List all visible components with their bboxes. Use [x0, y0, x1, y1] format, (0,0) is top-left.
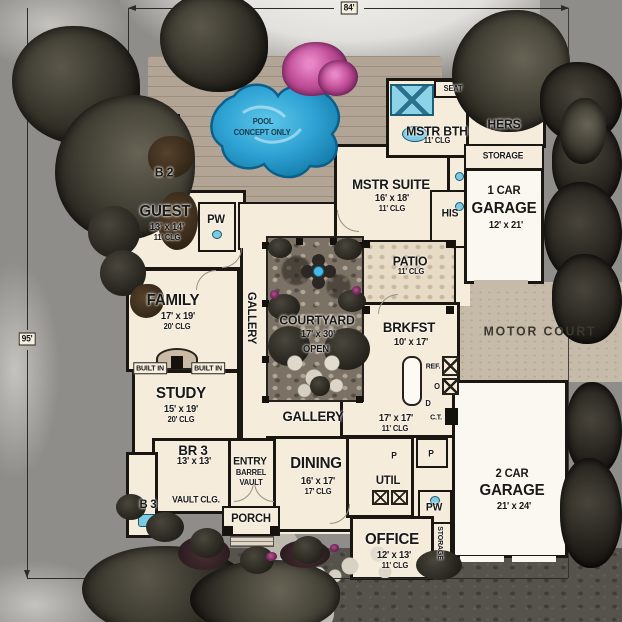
br3-clg: VAULT CLG. [172, 496, 220, 505]
courtyard-planter [334, 238, 362, 260]
kitchen-island [402, 356, 422, 406]
courtyard-open: OPEN [303, 345, 329, 355]
dim-line-top [364, 8, 568, 9]
mstr-shower [390, 84, 434, 116]
ct-label: C.T. [430, 413, 442, 421]
bath3-label: B 3 [140, 498, 157, 510]
patio-clg: 11' CLG [398, 268, 424, 276]
mstr-suite-label: MSTR SUITE [352, 177, 430, 191]
dining-size: 16' x 17' [301, 477, 335, 487]
seat-label: SEAT [444, 85, 463, 93]
study-clg: 20' CLG [168, 416, 195, 424]
gallery-left-label: GALLERY [246, 292, 258, 344]
study-size: 15' x 19' [164, 405, 198, 415]
courtyard-planter [268, 238, 292, 258]
porch-label: PORCH [231, 512, 271, 524]
dim-height-label: 95' [19, 333, 36, 346]
garage2-size: 21' x 24' [497, 502, 531, 512]
garage1-door [474, 280, 528, 286]
dryer [391, 490, 408, 505]
dining-clg: 17' CLG [305, 488, 332, 496]
powder1-label: PW [207, 213, 225, 225]
porch-column [224, 526, 233, 535]
dining-label: DINING [290, 456, 342, 472]
hers-label: HERS [487, 118, 520, 131]
dim-arrow [128, 5, 136, 11]
mstr-bath-clg: 11' CLG [424, 137, 450, 145]
courtyard-size: 17' x 30' [301, 330, 335, 340]
office-size: 12' x 13' [377, 551, 411, 561]
study-label: STUDY [156, 386, 206, 402]
bush [190, 528, 224, 558]
brkfst-label: BRKFST [383, 320, 435, 334]
guest-label: GUEST [140, 204, 191, 220]
gallery-column [296, 238, 303, 245]
office-label: OFFICE [365, 532, 419, 548]
pool-label: POOL [253, 118, 274, 126]
ref-label: REF. [426, 362, 441, 370]
patio-label: PATIO [393, 255, 428, 268]
washer [372, 490, 389, 505]
kitchen-clg: 11' CLG [382, 425, 408, 433]
dim-arrow [24, 570, 30, 578]
mstr-suite-size: 16' x 18' [375, 194, 409, 204]
lawn-light-patch [0, 260, 60, 480]
porch-column [270, 526, 279, 535]
family-label: FAMILY [147, 293, 200, 309]
gallery-column [262, 356, 269, 363]
powder2-label: PW [426, 503, 442, 514]
family-clg: 20' CLG [164, 323, 191, 331]
courtyard-label: COURTYARD [279, 314, 354, 327]
refrigerator [442, 356, 459, 376]
dw-label: D [425, 400, 430, 408]
entry-label2: BARREL [236, 469, 266, 477]
motor-court-label: MOTOR COURT [484, 325, 597, 338]
bush [292, 536, 324, 564]
mstr-suite-clg: 11' CLG [379, 205, 405, 213]
garage2-door [512, 556, 556, 562]
dim-width-label: 84' [341, 2, 358, 15]
storage1-label: STORAGE [483, 152, 523, 161]
his-label: HIS [442, 209, 459, 220]
patio-column [446, 240, 454, 248]
tree [560, 98, 606, 164]
porch-steps [230, 536, 274, 547]
brkfst-size: 10' x 17' [394, 338, 428, 348]
garage2-label2: GARAGE [480, 483, 545, 499]
bath2-label: B 2 [155, 166, 173, 179]
vanity-sink [455, 172, 464, 181]
storage2-label: STORAGE [436, 526, 444, 559]
garage1-label2: GARAGE [472, 201, 537, 217]
oven-label: O [434, 383, 440, 391]
dim-line-left [27, 350, 28, 578]
builtin-left-label: BUILT IN [133, 362, 166, 374]
double-oven [442, 378, 459, 395]
gallery-bottom-label: GALLERY [282, 409, 343, 423]
gallery-column [262, 396, 269, 403]
cook-top [445, 408, 458, 425]
kitchen-size: 17' x 17' [379, 414, 413, 424]
family-size: 17' x 19' [161, 312, 195, 322]
hedge [560, 458, 622, 568]
builtin-right-label: BUILT IN [191, 362, 224, 374]
entry-label3: VAULT [239, 479, 262, 487]
entry-label: ENTRY [233, 457, 267, 468]
util-label: UTIL [376, 474, 400, 486]
garage2-door [460, 556, 504, 562]
room-powder1 [198, 202, 236, 252]
patio-column [446, 306, 454, 314]
bush [146, 512, 184, 542]
br3-label: BR 3 [178, 443, 207, 457]
pool-label: CONCEPT ONLY [234, 129, 291, 137]
fountain-water [313, 266, 324, 277]
garage1-size: 12' x 21' [489, 221, 523, 231]
powder1-sink [212, 230, 222, 239]
br3-size: 13' x 13' [177, 457, 211, 467]
bush [88, 206, 140, 258]
patio-column [362, 240, 370, 248]
guest-clg: 11' CLG [154, 234, 180, 242]
office-clg: 11' CLG [382, 562, 408, 570]
pantry1-label: P [391, 452, 396, 461]
floor-plan-image: 84' 95' POOL CONCEPT ONLY B 2 PW GUEST 1… [0, 0, 622, 622]
pantry2-label: P [428, 450, 433, 459]
guest-size: 13' x 14' [150, 223, 184, 233]
garage1-label1: 1 CAR [488, 184, 521, 196]
courtyard-planter [310, 376, 330, 396]
firebox [171, 356, 183, 369]
gallery-column [356, 396, 363, 403]
garage2-label1: 2 CAR [496, 467, 529, 479]
